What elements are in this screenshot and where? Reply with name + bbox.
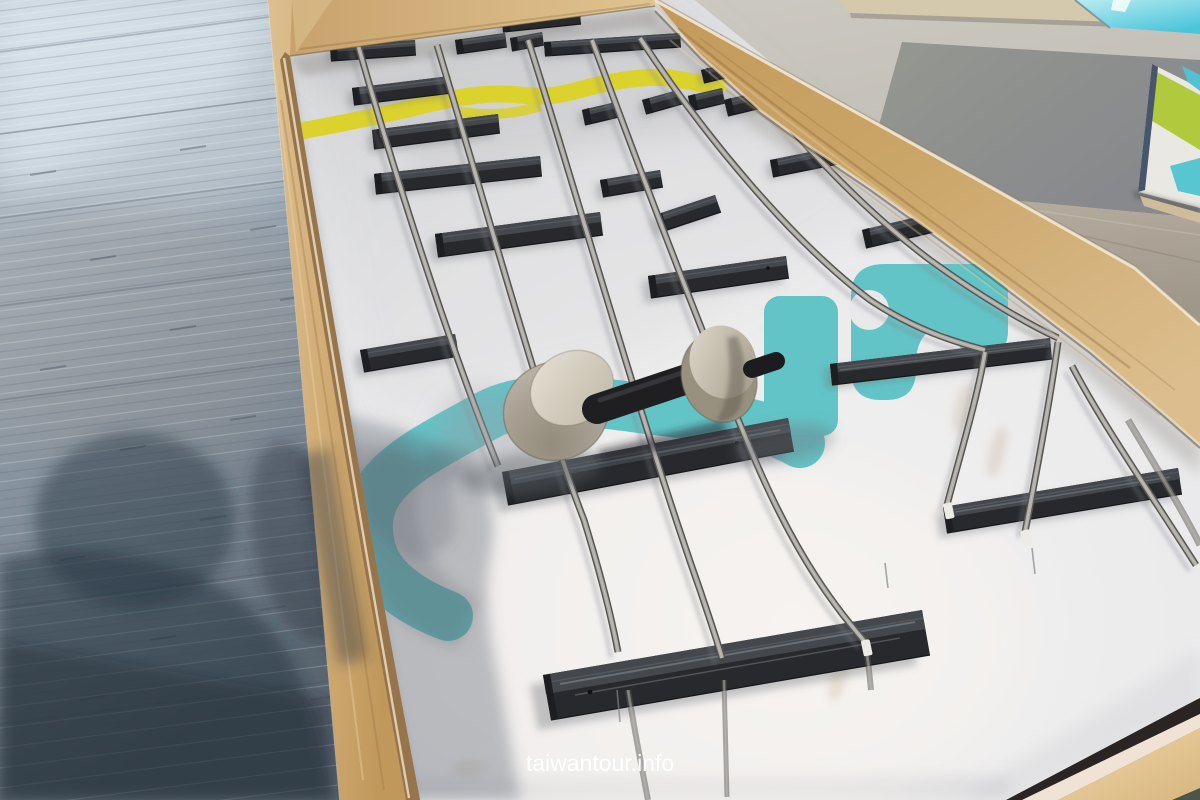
svg-text:taiwantour.info: taiwantour.info	[526, 750, 674, 776]
